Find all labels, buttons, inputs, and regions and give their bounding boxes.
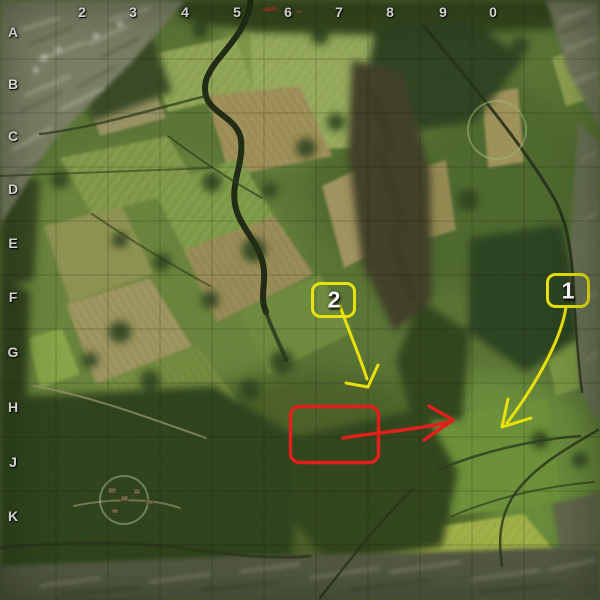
map-canvas: 2 3 4 5 6 7 8 9 0 A B C D E F G H J K (0, 0, 600, 600)
tactical-annotations (0, 0, 600, 600)
marker-1-arrow (507, 307, 566, 423)
marker-1-label: 1 (562, 280, 575, 303)
marker-2-label: 2 (328, 289, 341, 312)
